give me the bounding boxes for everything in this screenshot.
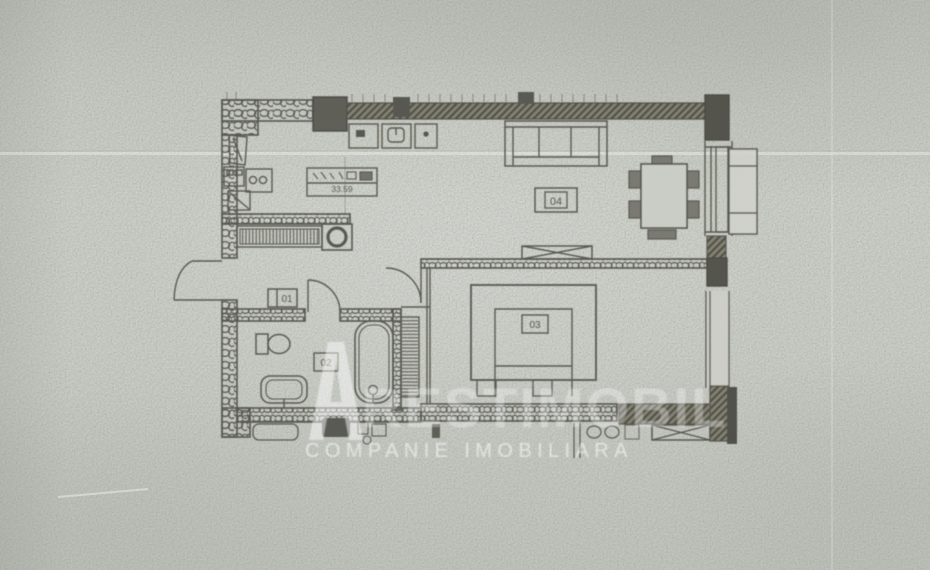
svg-text:01: 01: [281, 294, 293, 305]
svg-text:COMPANIE IMOBILIARA: COMPANIE IMOBILIARA: [305, 440, 633, 462]
svg-text:04: 04: [550, 196, 562, 208]
svg-text:RESTIMOBIL: RESTIMOBIL: [362, 376, 727, 439]
svg-text:33.59: 33.59: [331, 184, 353, 194]
svg-text:03: 03: [529, 320, 541, 331]
